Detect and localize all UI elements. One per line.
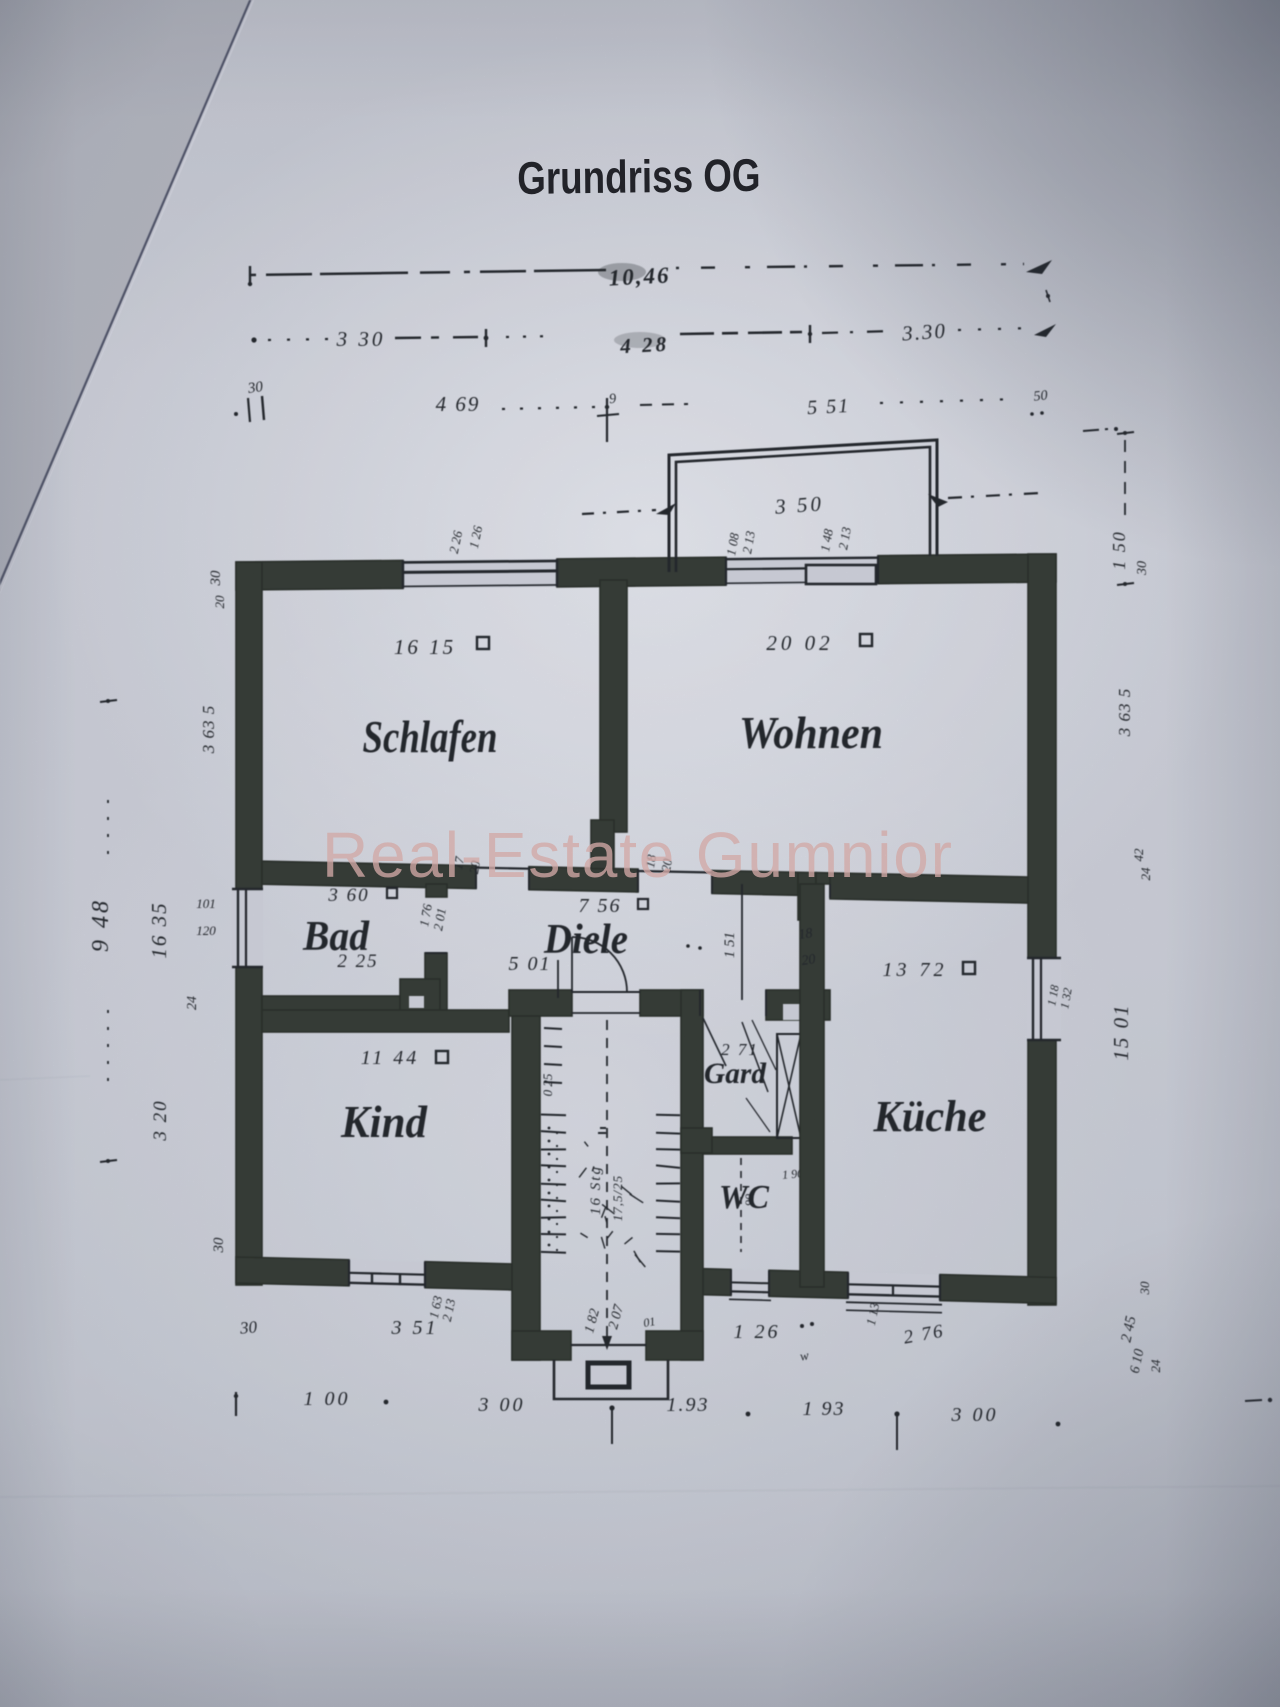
svg-text:30: 30 xyxy=(211,1237,227,1254)
svg-text:w: w xyxy=(799,1347,810,1363)
svg-text:1 26: 1 26 xyxy=(466,524,486,550)
svg-text:11 44: 11 44 xyxy=(361,1047,420,1069)
svg-text:2 71: 2 71 xyxy=(721,1040,759,1059)
svg-text:1 82: 1 82 xyxy=(582,1307,603,1335)
svg-text:2 25: 2 25 xyxy=(337,951,378,972)
svg-text:13 72: 13 72 xyxy=(883,959,948,981)
svg-text:4 69: 4 69 xyxy=(436,392,481,416)
svg-text:3 00: 3 00 xyxy=(478,1394,526,1416)
svg-text:3 63 5: 3 63 5 xyxy=(1115,688,1134,738)
svg-text:50: 50 xyxy=(1033,388,1048,404)
svg-text:Kind: Kind xyxy=(340,1096,428,1147)
svg-text:18: 18 xyxy=(798,926,814,943)
svg-text:24: 24 xyxy=(1138,867,1153,881)
svg-text:1.93: 1.93 xyxy=(667,1394,710,1416)
svg-text:3 63 5: 3 63 5 xyxy=(199,705,218,755)
svg-text:0 25: 0 25 xyxy=(540,1073,555,1096)
svg-text:Gard: Gard xyxy=(704,1057,767,1090)
svg-text:Schlafen: Schlafen xyxy=(363,711,498,762)
svg-text:9 48: 9 48 xyxy=(88,898,114,952)
svg-text:Küche: Küche xyxy=(873,1092,987,1141)
svg-text:17,5/25: 17,5/25 xyxy=(610,1175,625,1221)
svg-text:1 93: 1 93 xyxy=(803,1398,846,1420)
svg-text:3.30: 3.30 xyxy=(900,318,947,345)
svg-text:42: 42 xyxy=(1131,848,1146,862)
svg-text:30: 30 xyxy=(208,570,224,587)
svg-text:1 26: 1 26 xyxy=(734,1321,781,1343)
svg-text:1 50: 1 50 xyxy=(1109,530,1129,570)
svg-text:5 51: 5 51 xyxy=(807,395,851,419)
svg-text:4 28: 4 28 xyxy=(619,332,670,359)
svg-text:30: 30 xyxy=(1135,561,1150,576)
svg-text:2 76: 2 76 xyxy=(902,1321,946,1349)
svg-text:2 01: 2 01 xyxy=(430,907,449,932)
svg-text:20: 20 xyxy=(801,952,817,969)
svg-text:120: 120 xyxy=(196,923,216,938)
svg-text:24: 24 xyxy=(185,996,200,1010)
svg-text:WC: WC xyxy=(719,1179,769,1216)
svg-text:3 00: 3 00 xyxy=(951,1404,999,1426)
svg-text:3 20: 3 20 xyxy=(150,1099,171,1141)
svg-text:16 35: 16 35 xyxy=(147,901,171,958)
svg-text:7 56: 7 56 xyxy=(579,895,622,917)
svg-text:1 51: 1 51 xyxy=(722,932,738,958)
svg-text:Wohnen: Wohnen xyxy=(739,707,883,758)
svg-text:3 30: 3 30 xyxy=(336,327,386,351)
svg-text:30: 30 xyxy=(238,1317,258,1338)
svg-text:10,46: 10,46 xyxy=(608,262,671,290)
svg-text:2 26: 2 26 xyxy=(446,529,466,555)
svg-text:2 07: 2 07 xyxy=(606,1302,627,1331)
svg-text:5 01: 5 01 xyxy=(509,953,552,975)
svg-text:24: 24 xyxy=(1148,1359,1163,1373)
svg-text:20: 20 xyxy=(212,595,227,609)
svg-text:1 32: 1 32 xyxy=(1057,987,1074,1010)
svg-text:1 48: 1 48 xyxy=(817,527,836,553)
svg-text:30: 30 xyxy=(246,379,265,397)
svg-text:9: 9 xyxy=(609,392,617,408)
svg-text:101: 101 xyxy=(196,896,216,911)
svg-text:3 50: 3 50 xyxy=(773,491,824,518)
svg-text:1 00: 1 00 xyxy=(304,1388,351,1410)
svg-text:2 13: 2 13 xyxy=(835,525,854,551)
svg-text:16 Stg: 16 Stg xyxy=(588,1165,604,1215)
svg-text:20 02: 20 02 xyxy=(766,631,833,655)
svg-text:16 15: 16 15 xyxy=(394,635,456,659)
svg-text:2 13: 2 13 xyxy=(739,529,758,555)
svg-text:2 45: 2 45 xyxy=(1119,1314,1140,1343)
svg-text:1 13: 1 13 xyxy=(863,1301,883,1327)
svg-text:3 51: 3 51 xyxy=(391,1317,439,1339)
svg-text:01: 01 xyxy=(642,1314,656,1330)
svg-text:6 10: 6 10 xyxy=(1128,1348,1148,1375)
svg-text:30: 30 xyxy=(1137,1281,1152,1296)
svg-text:15 01: 15 01 xyxy=(1109,1003,1133,1060)
svg-text:Diele: Diele xyxy=(543,917,628,963)
